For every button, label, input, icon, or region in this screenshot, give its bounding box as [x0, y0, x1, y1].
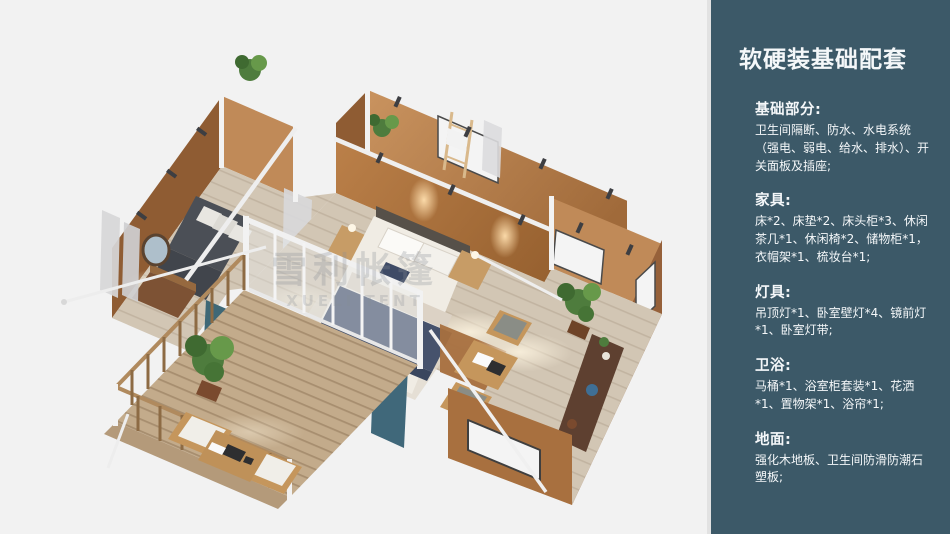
panel-section-basics: 基础部分: 卫生间隔断、防水、水电系统（强电、弱电、给水、排水）、开关面板及插座…: [755, 98, 930, 175]
section-body: 强化木地板、卫生间防滑防潮石塑板;: [755, 452, 930, 488]
section-body: 马桶*1、浴室柜套装*1、花洒*1、置物架*1、浴帘*1;: [755, 378, 930, 414]
shower-curtain: [482, 120, 502, 178]
info-panel: 软硬装基础配套 基础部分: 卫生间隔断、防水、水电系统（强电、弱电、给水、排水）…: [711, 0, 950, 534]
plant-small: [235, 55, 267, 81]
panel-title: 软硬装基础配套: [739, 40, 930, 74]
section-heading: 卫浴:: [755, 354, 930, 375]
section-body: 卫生间隔断、防水、水电系统（强电、弱电、给水、排水）、开关面板及插座;: [755, 122, 930, 175]
floorplan-render: 雪利帐篷 XUELI TENT: [0, 0, 710, 534]
watermark-line1: 雪利帐篷: [271, 250, 439, 291]
section-heading: 基础部分:: [755, 98, 930, 119]
panel-section-furniture: 家具: 床*2、床垫*2、床头柜*3、休闲茶几*1、休闲椅*2、储物柜*1，衣帽…: [755, 189, 930, 266]
watermark: 雪利帐篷 XUELI TENT: [271, 250, 439, 310]
watermark-line2: XUELI TENT: [286, 292, 424, 310]
section-heading: 地面:: [755, 428, 930, 449]
section-body: 床*2、床垫*2、床头柜*3、休闲茶几*1、休闲椅*2、储物柜*1，衣帽架*1、…: [755, 213, 930, 266]
round-mirror: [143, 235, 169, 265]
panel-section-flooring: 地面: 强化木地板、卫生间防滑防潮石塑板;: [755, 428, 930, 488]
section-heading: 家具:: [755, 189, 930, 210]
page: 雪利帐篷 XUELI TENT 软硬装基础配套 基础部分: 卫生间隔断、防水、水…: [0, 0, 950, 534]
panel-section-lighting: 灯具: 吊顶灯*1、卧室壁灯*4、镜前灯*1、卧室灯带;: [755, 281, 930, 341]
panel-section-bathroom: 卫浴: 马桶*1、浴室柜套装*1、花洒*1、置物架*1、浴帘*1;: [755, 354, 930, 414]
section-heading: 灯具:: [755, 281, 930, 302]
section-body: 吊顶灯*1、卧室壁灯*4、镜前灯*1、卧室灯带;: [755, 305, 930, 341]
